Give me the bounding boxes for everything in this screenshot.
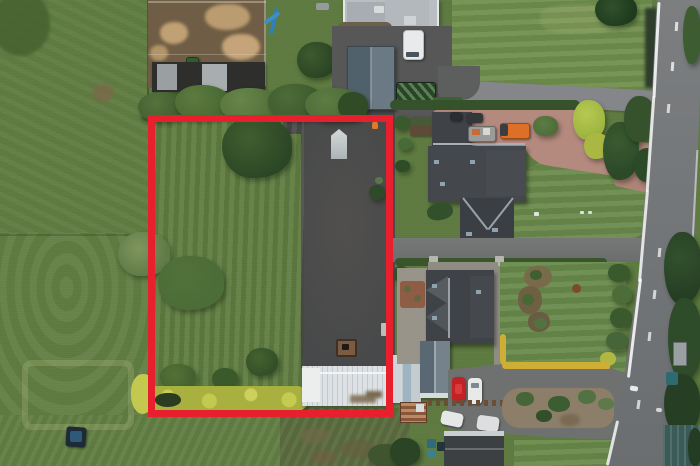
red-car-roof	[455, 384, 462, 394]
shack-white-corner	[416, 404, 424, 412]
red-plot-boundary	[148, 115, 393, 417]
bottom-house-ridge	[444, 448, 504, 450]
scrub-patch	[300, 428, 330, 444]
wheelie-bin-dark	[437, 442, 445, 451]
yellow-curb-horizontal	[502, 362, 610, 369]
skylight	[440, 182, 445, 186]
bed-shrub	[530, 270, 542, 280]
wheelie-bin	[427, 449, 436, 458]
white-car-windshield	[471, 383, 479, 388]
small-tree	[572, 284, 581, 293]
red-gravel-garden	[400, 281, 425, 308]
white-car	[476, 415, 500, 433]
truck-cab	[500, 124, 508, 136]
van-windshield	[406, 52, 419, 57]
lawn-item	[534, 212, 539, 216]
gravel-shrub-dark	[536, 410, 552, 422]
shrub-border	[608, 264, 630, 282]
sand-patch	[222, 34, 260, 60]
farmhouse-chimney	[374, 6, 384, 13]
scrub-patch	[310, 450, 338, 464]
skylight	[466, 232, 472, 236]
shrub-border	[606, 332, 628, 350]
road-marking	[656, 408, 662, 413]
worn-pen-outline	[22, 360, 134, 430]
dark-car	[450, 112, 462, 121]
garage-roof	[420, 341, 450, 398]
west-bush	[398, 138, 412, 150]
roof-ridge	[433, 143, 525, 145]
paddock-fence	[148, 54, 266, 55]
trailer-load	[483, 128, 490, 135]
bare-patch	[92, 84, 114, 102]
trailer-load	[472, 129, 480, 135]
tree	[297, 42, 337, 78]
skylight	[470, 160, 475, 164]
bottom-tree	[390, 438, 420, 466]
roadside-trees	[683, 6, 700, 64]
wheelie-bin	[427, 439, 436, 448]
bed-shrub	[534, 318, 547, 329]
bottom-lawn	[514, 440, 618, 466]
gravel-shrub	[548, 396, 570, 412]
gravel-bare	[560, 414, 580, 426]
driveway-junction	[438, 66, 480, 100]
gravel-shrub	[516, 392, 534, 406]
sand-patch	[150, 45, 168, 61]
west-bush	[395, 160, 410, 172]
shrub-border	[612, 286, 632, 304]
skylight	[432, 316, 437, 320]
garden-pool	[426, 201, 455, 222]
brown-shed	[410, 117, 432, 136]
roadside-sign	[673, 342, 687, 366]
garden-bench	[316, 3, 329, 10]
gravel-shrub	[578, 390, 596, 404]
skylight	[434, 160, 439, 164]
roof-ridge	[448, 278, 450, 338]
dark-car	[466, 113, 483, 123]
south-house-wing	[470, 276, 494, 338]
paddock-shed-panel	[157, 64, 177, 90]
skylight	[492, 228, 498, 232]
garage-gable	[420, 393, 450, 398]
skylight	[476, 290, 481, 294]
roadside-trees	[664, 232, 700, 304]
farmhouse-dormer	[404, 16, 416, 25]
gravel-shrub	[598, 398, 614, 410]
corner-tree	[688, 428, 700, 466]
north-house-roof-wing	[486, 150, 526, 196]
sand-patch	[160, 22, 188, 44]
sand-patch	[205, 4, 250, 30]
skylight	[432, 284, 437, 288]
bottom-house-roof	[444, 436, 504, 466]
bed-shrub	[522, 294, 534, 305]
shrub-border	[610, 308, 632, 328]
hedge-north-boundary	[390, 100, 580, 110]
paddock-fence	[148, 1, 266, 3]
roadside-trees	[668, 298, 700, 380]
teal-bin	[666, 372, 678, 385]
aerial-photo	[0, 0, 700, 466]
timber-fence	[428, 400, 506, 406]
dark-tank-cover	[70, 431, 82, 442]
lawn-item	[580, 211, 584, 214]
lawn-item	[588, 211, 592, 214]
round-bush	[533, 116, 558, 136]
west-bush	[394, 116, 410, 130]
